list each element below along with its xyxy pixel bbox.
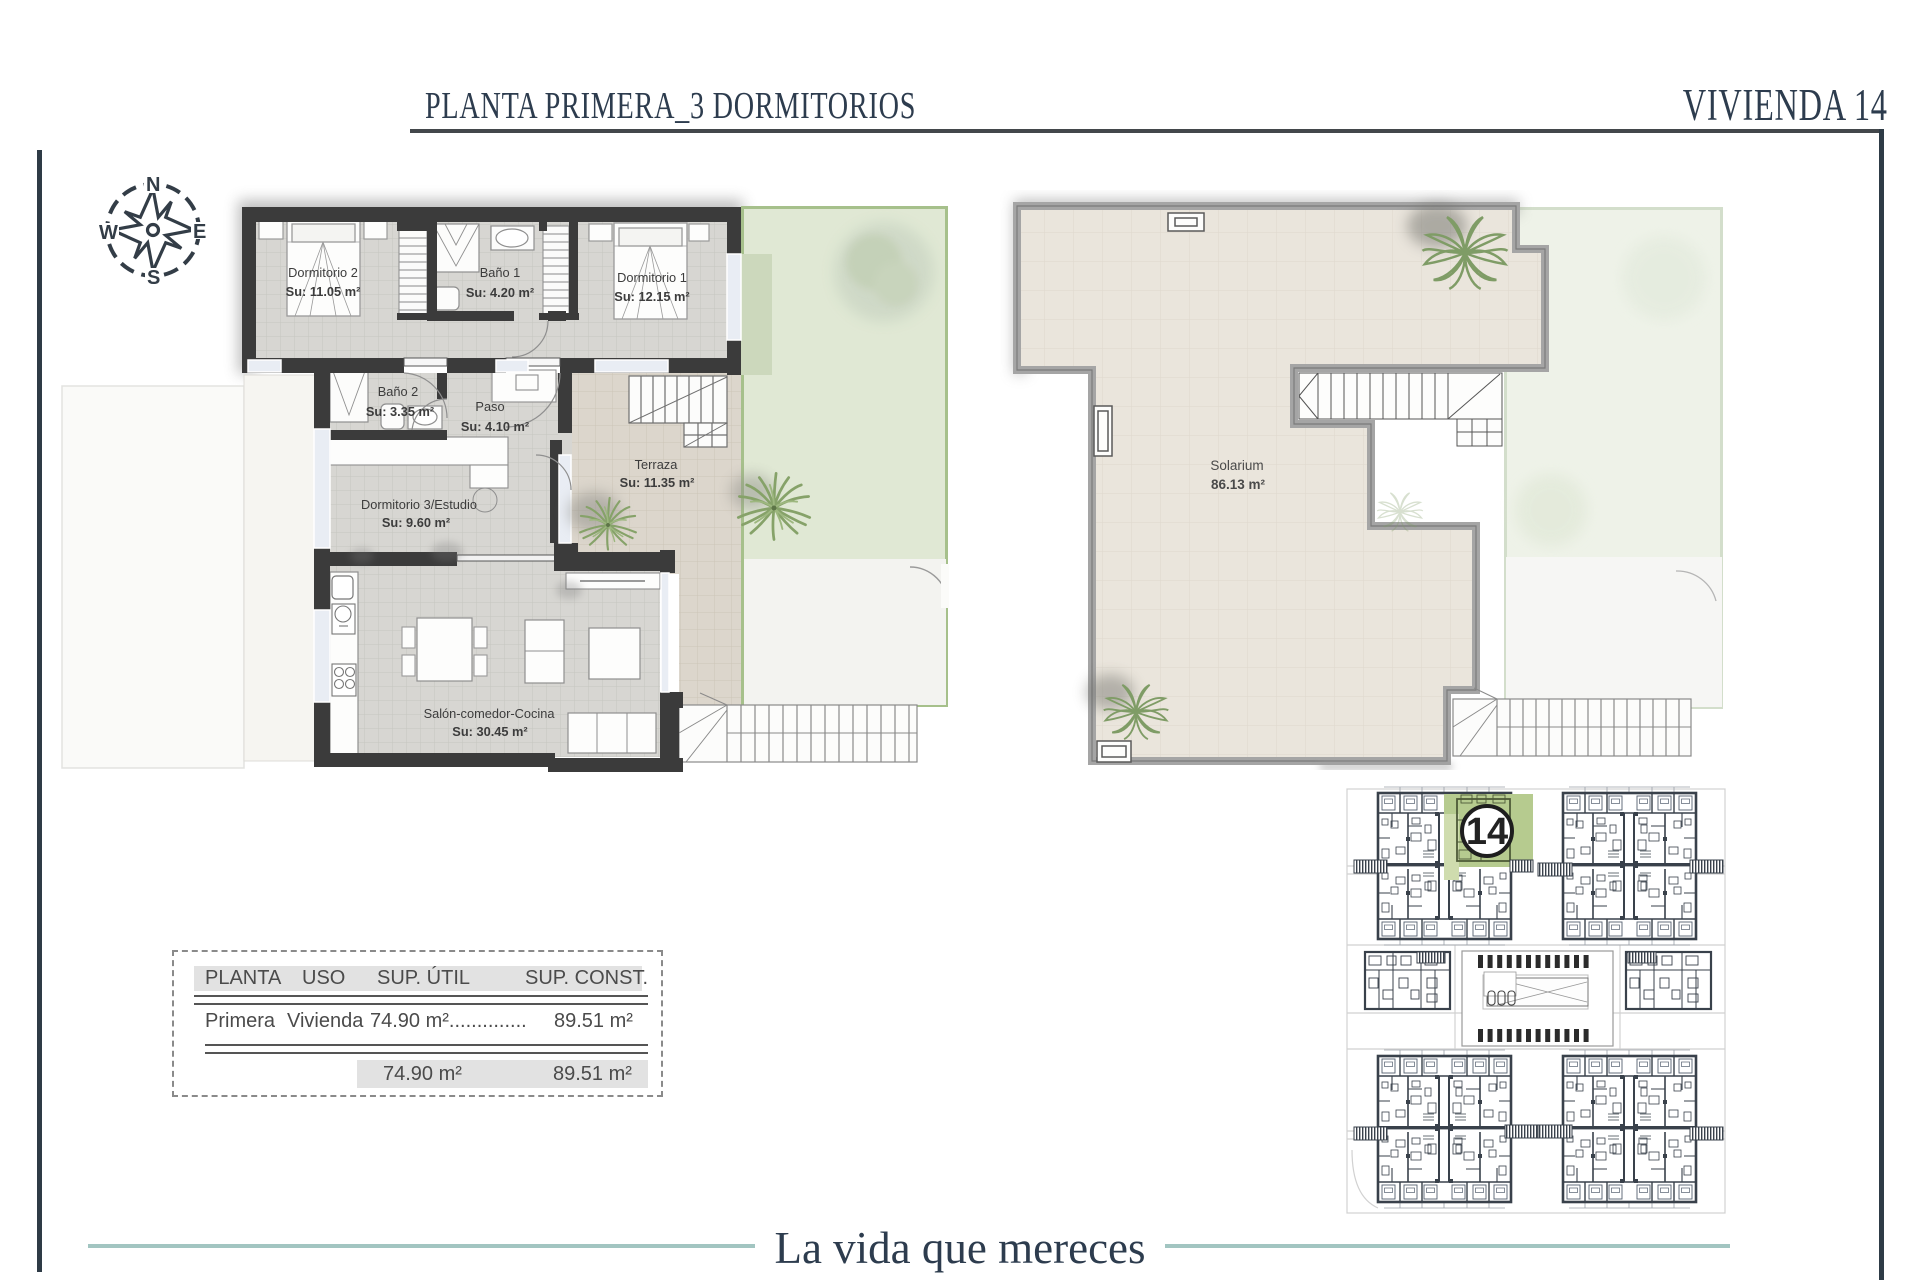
svg-text:Dormitorio 2: Dormitorio 2 [288, 265, 358, 280]
svg-text:Baño 2: Baño 2 [378, 384, 419, 399]
svg-text:Dormitorio 3/Estudio: Dormitorio 3/Estudio [361, 497, 477, 512]
svg-text:Paso: Paso [475, 399, 504, 414]
svg-text:Su: 3.35 m²: Su: 3.35 m² [366, 404, 434, 419]
svg-text:14: 14 [1466, 811, 1508, 853]
svg-text:Baño 1: Baño 1 [480, 265, 521, 280]
svg-text:86.13 m²: 86.13 m² [1211, 477, 1266, 492]
svg-text:Su: 12.15 m²: Su: 12.15 m² [614, 289, 689, 304]
svg-text:Terraza: Terraza [635, 457, 679, 472]
svg-text:Su: 9.60 m²: Su: 9.60 m² [382, 515, 450, 530]
svg-text:Salón-comedor-Cocina: Salón-comedor-Cocina [424, 706, 556, 721]
svg-text:Su: 4.20 m²: Su: 4.20 m² [466, 285, 534, 300]
svg-text:Su: 11.05 m²: Su: 11.05 m² [286, 284, 361, 299]
svg-text:Solarium: Solarium [1210, 458, 1263, 473]
svg-text:Su: 4.10 m²: Su: 4.10 m² [461, 419, 529, 434]
svg-text:Su: 30.45 m²: Su: 30.45 m² [452, 724, 527, 739]
svg-text:Dormitorio 1: Dormitorio 1 [617, 270, 687, 285]
svg-text:Su: 11.35 m²: Su: 11.35 m² [620, 475, 695, 490]
